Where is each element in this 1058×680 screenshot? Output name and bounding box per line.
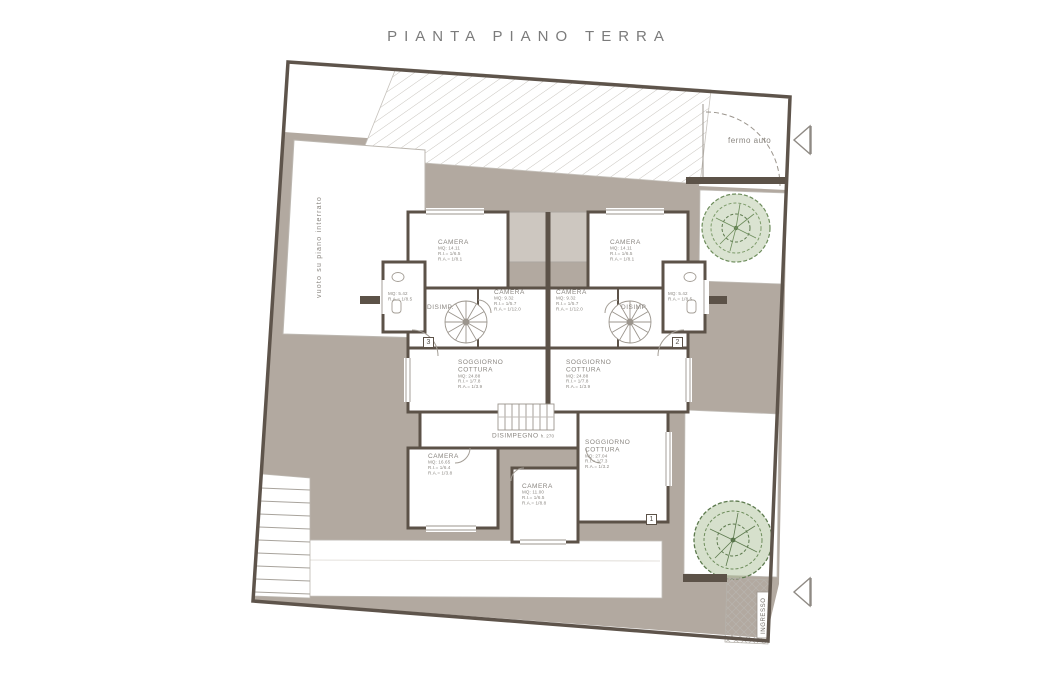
room-label-camera-bc: CAMERA MQ: 11.00 R.I.= 1/6.5 R.A.= 1/8.8	[522, 482, 553, 506]
straight-stair	[498, 404, 554, 430]
unit-marker-1: 1	[646, 514, 657, 525]
fermo-auto-label: fermo auto	[728, 136, 771, 145]
room-label-disimpegno: DISIMPEGNO h. 270	[492, 431, 554, 440]
entrance-arrow-icon	[794, 126, 811, 606]
unit-marker-3: 3	[423, 337, 434, 348]
room-label-soggiorno-b: SOGGIORNO COTTURA MQ: 27.04 R.I.= 1/7.3 …	[585, 438, 630, 469]
room-label-camera-mr: CAMERA MQ: 9.32 R.I.= 1/5.7 R.A.= 1/12.0	[556, 288, 587, 312]
floor-plan-page: PIANTA PIANO TERRA	[0, 0, 1058, 680]
room-label-disimp-l: DISIMP.	[427, 303, 454, 311]
terrace-south	[296, 540, 662, 598]
room-label-soggiorno-r: SOGGIORNO COTTURA MQ: 24.88 R.I.= 1/7.8 …	[566, 358, 611, 389]
room-label-camera-tr: CAMERA MQ: 14.11 R.I.= 1/6.5 R.A.= 1/8.1	[610, 238, 641, 262]
ingresso-label: INGRESSO	[761, 598, 767, 634]
room-label-bagno-r: MQ: 5.42 R.A.= 1/8.5	[668, 291, 692, 302]
room-label-camera-bl: CAMERA MQ: 16.65 R.I.= 1/6.4 R.A.= 1/3.8	[428, 452, 459, 476]
tree-south-icon	[694, 501, 772, 579]
room-label-camera-tl: CAMERA MQ: 14.11 R.I.= 1/6.5 R.A.= 1/8.1	[438, 238, 469, 262]
room-label-camera-ml: CAMERA MQ: 9.32 R.I.= 1/5.7 R.A.= 1/12.0	[494, 288, 525, 312]
floor-plan-drawing	[0, 0, 1058, 680]
vuoto-piano-interrato-label: vuoto su piano interrato	[316, 196, 323, 298]
tree-north-icon	[702, 194, 770, 262]
room-label-disimp-r: DISIMP.	[621, 303, 648, 311]
unit-marker-2: 2	[672, 337, 683, 348]
room-label-bagno-l: MQ: 5.42 R.A.= 1/8.5	[388, 291, 412, 302]
room-label-soggiorno-l: SOGGIORNO COTTURA MQ: 24.88 R.I.= 1/7.8 …	[458, 358, 503, 389]
external-stairs	[254, 474, 310, 598]
